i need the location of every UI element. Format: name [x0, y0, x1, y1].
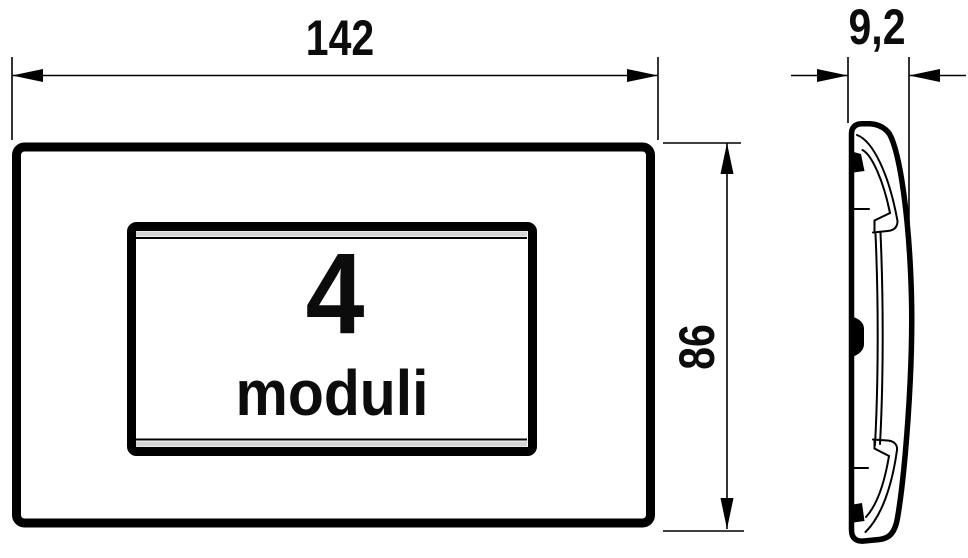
- height-arrow-up: [721, 143, 734, 174]
- technical-drawing-canvas: 142 9,2 86 4 moduli: [0, 0, 968, 558]
- drawing-svg: [0, 0, 968, 558]
- width-arrow-right: [627, 69, 658, 82]
- width-dimension: [12, 57, 658, 140]
- width-arrow-left: [12, 69, 43, 82]
- module-count-label: 4: [306, 237, 365, 352]
- height-dimension-label: 86: [672, 324, 722, 370]
- module-window-bottom-trim-gray: [136, 442, 527, 447]
- height-arrow-down: [721, 498, 734, 529]
- depth-dimension-label: 9,2: [848, 2, 905, 52]
- side-view-profile-group: [850, 124, 912, 541]
- side-profile-bottom-rib: [850, 503, 865, 523]
- depth-arrow-left: [817, 69, 848, 82]
- width-dimension-label: 142: [306, 13, 374, 63]
- depth-arrow-right: [909, 69, 940, 82]
- module-unit-label: moduli: [236, 361, 429, 425]
